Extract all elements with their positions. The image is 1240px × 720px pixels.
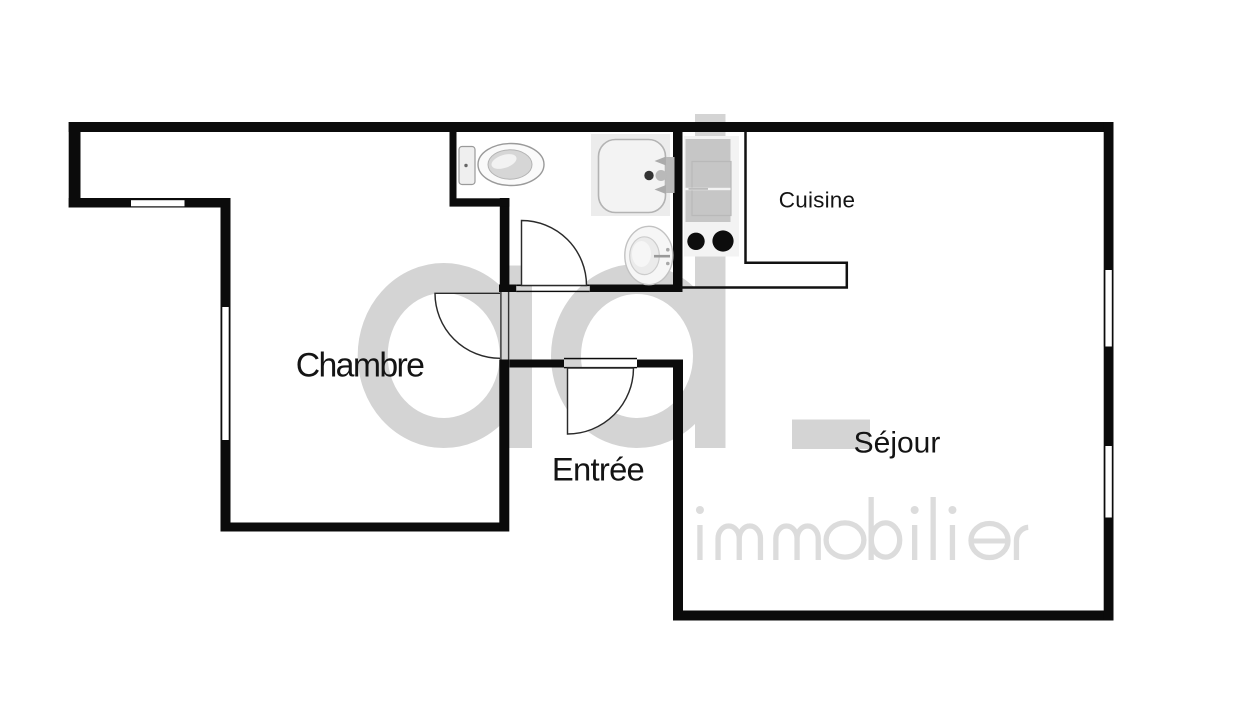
svg-text:Entrée: Entrée	[552, 451, 644, 488]
svg-text:Cuisine: Cuisine	[779, 188, 855, 213]
svg-text:Chambre: Chambre	[296, 347, 424, 385]
svg-text:Séjour: Séjour	[854, 427, 941, 460]
